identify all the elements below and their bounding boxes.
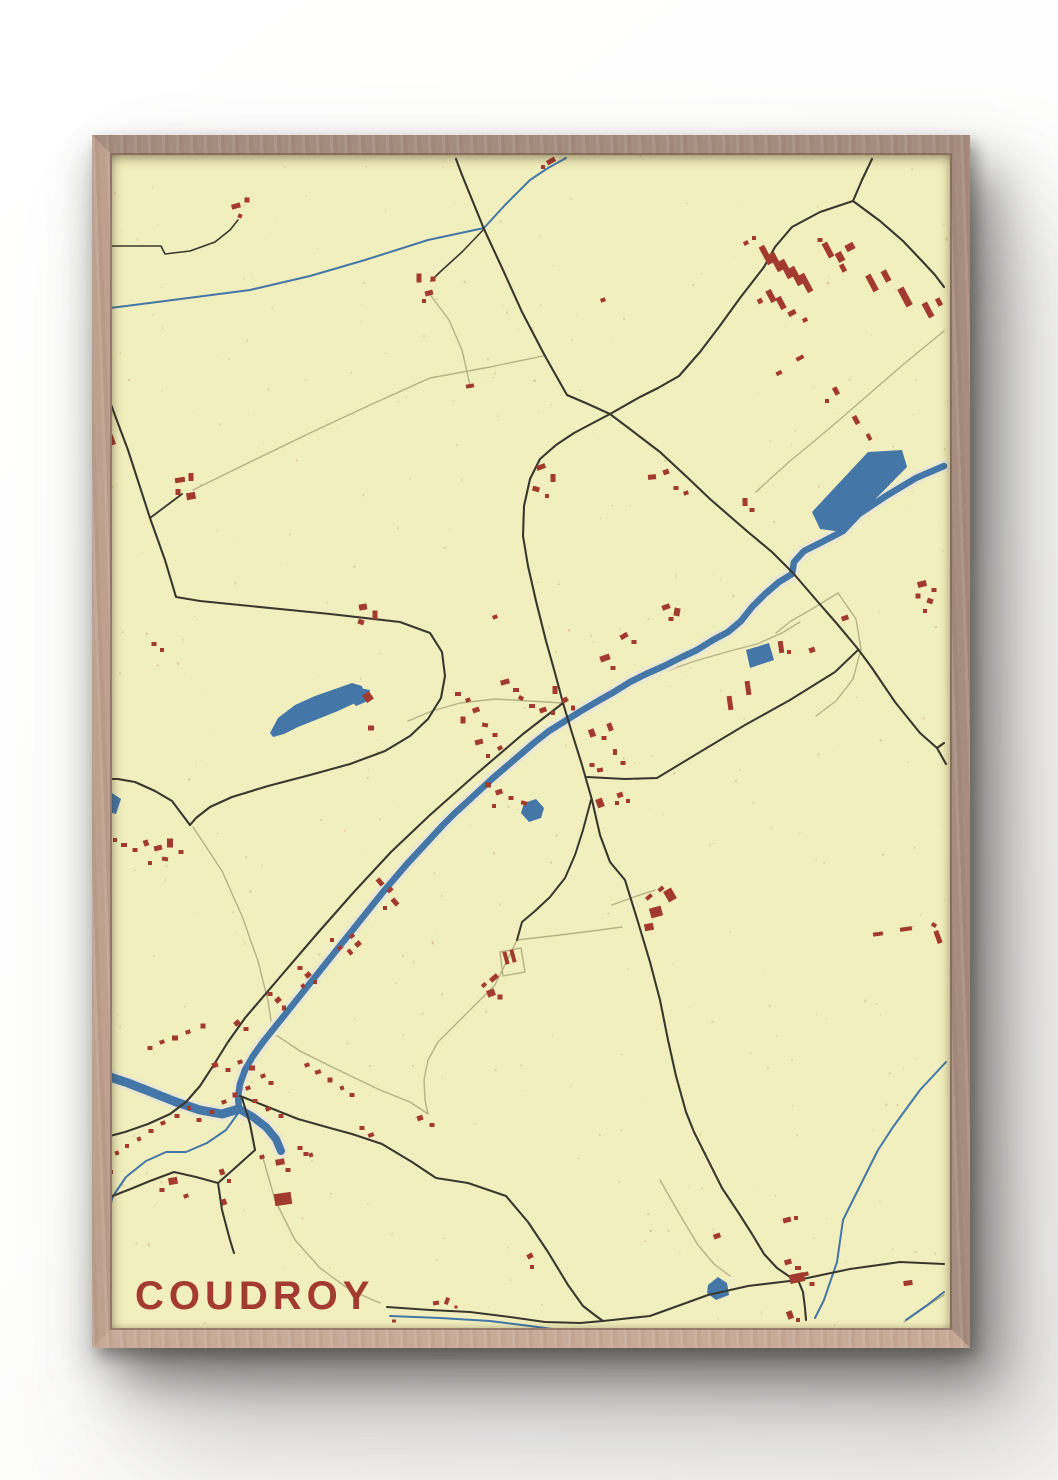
- wall: COUDROY: [0, 0, 1058, 1480]
- poster-title: COUDROY: [135, 1274, 374, 1319]
- poster-frame: COUDROY: [92, 135, 970, 1348]
- map-canvas: [112, 155, 950, 1328]
- map-poster: COUDROY: [112, 155, 950, 1328]
